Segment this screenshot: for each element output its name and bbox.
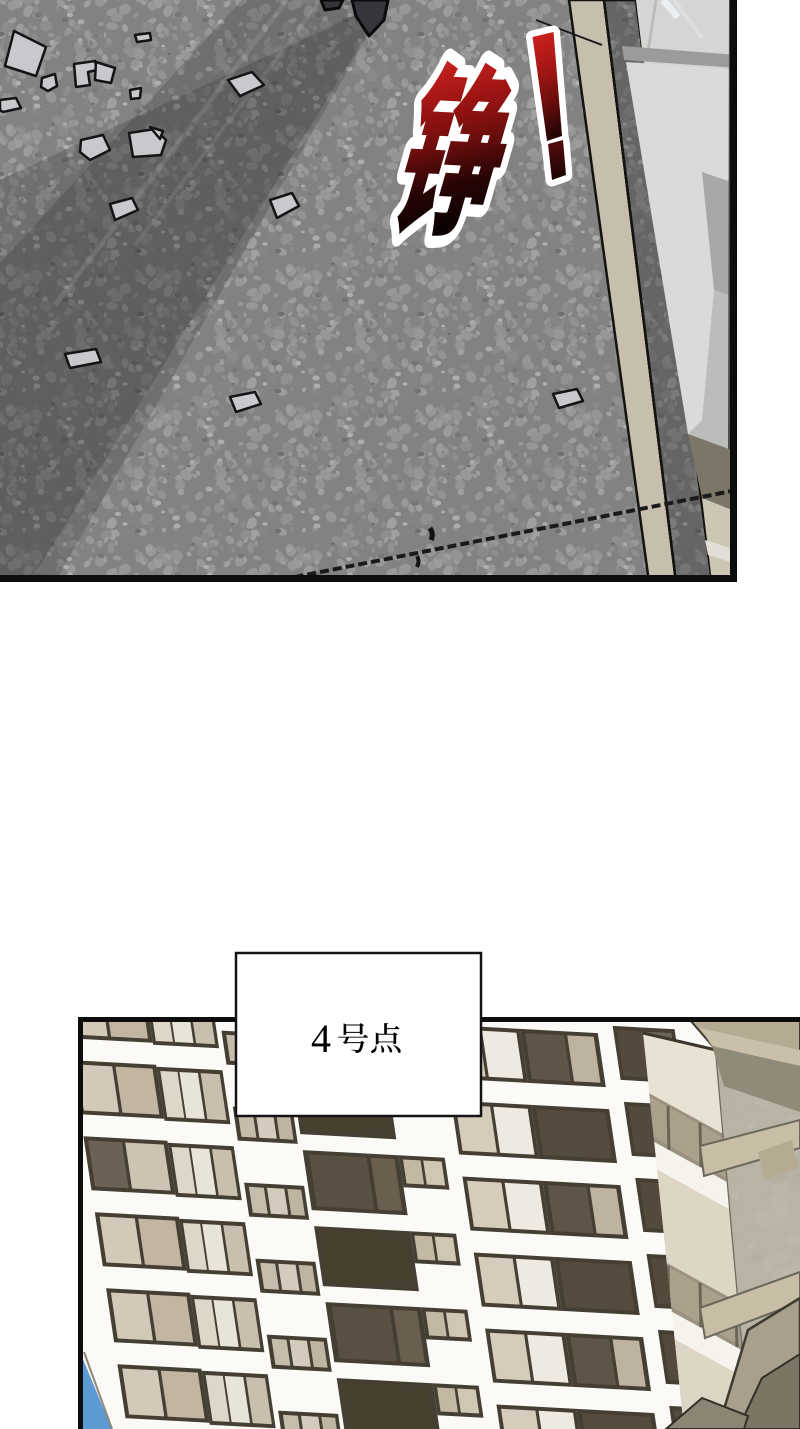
svg-text:4: 4 [311,1016,331,1061]
